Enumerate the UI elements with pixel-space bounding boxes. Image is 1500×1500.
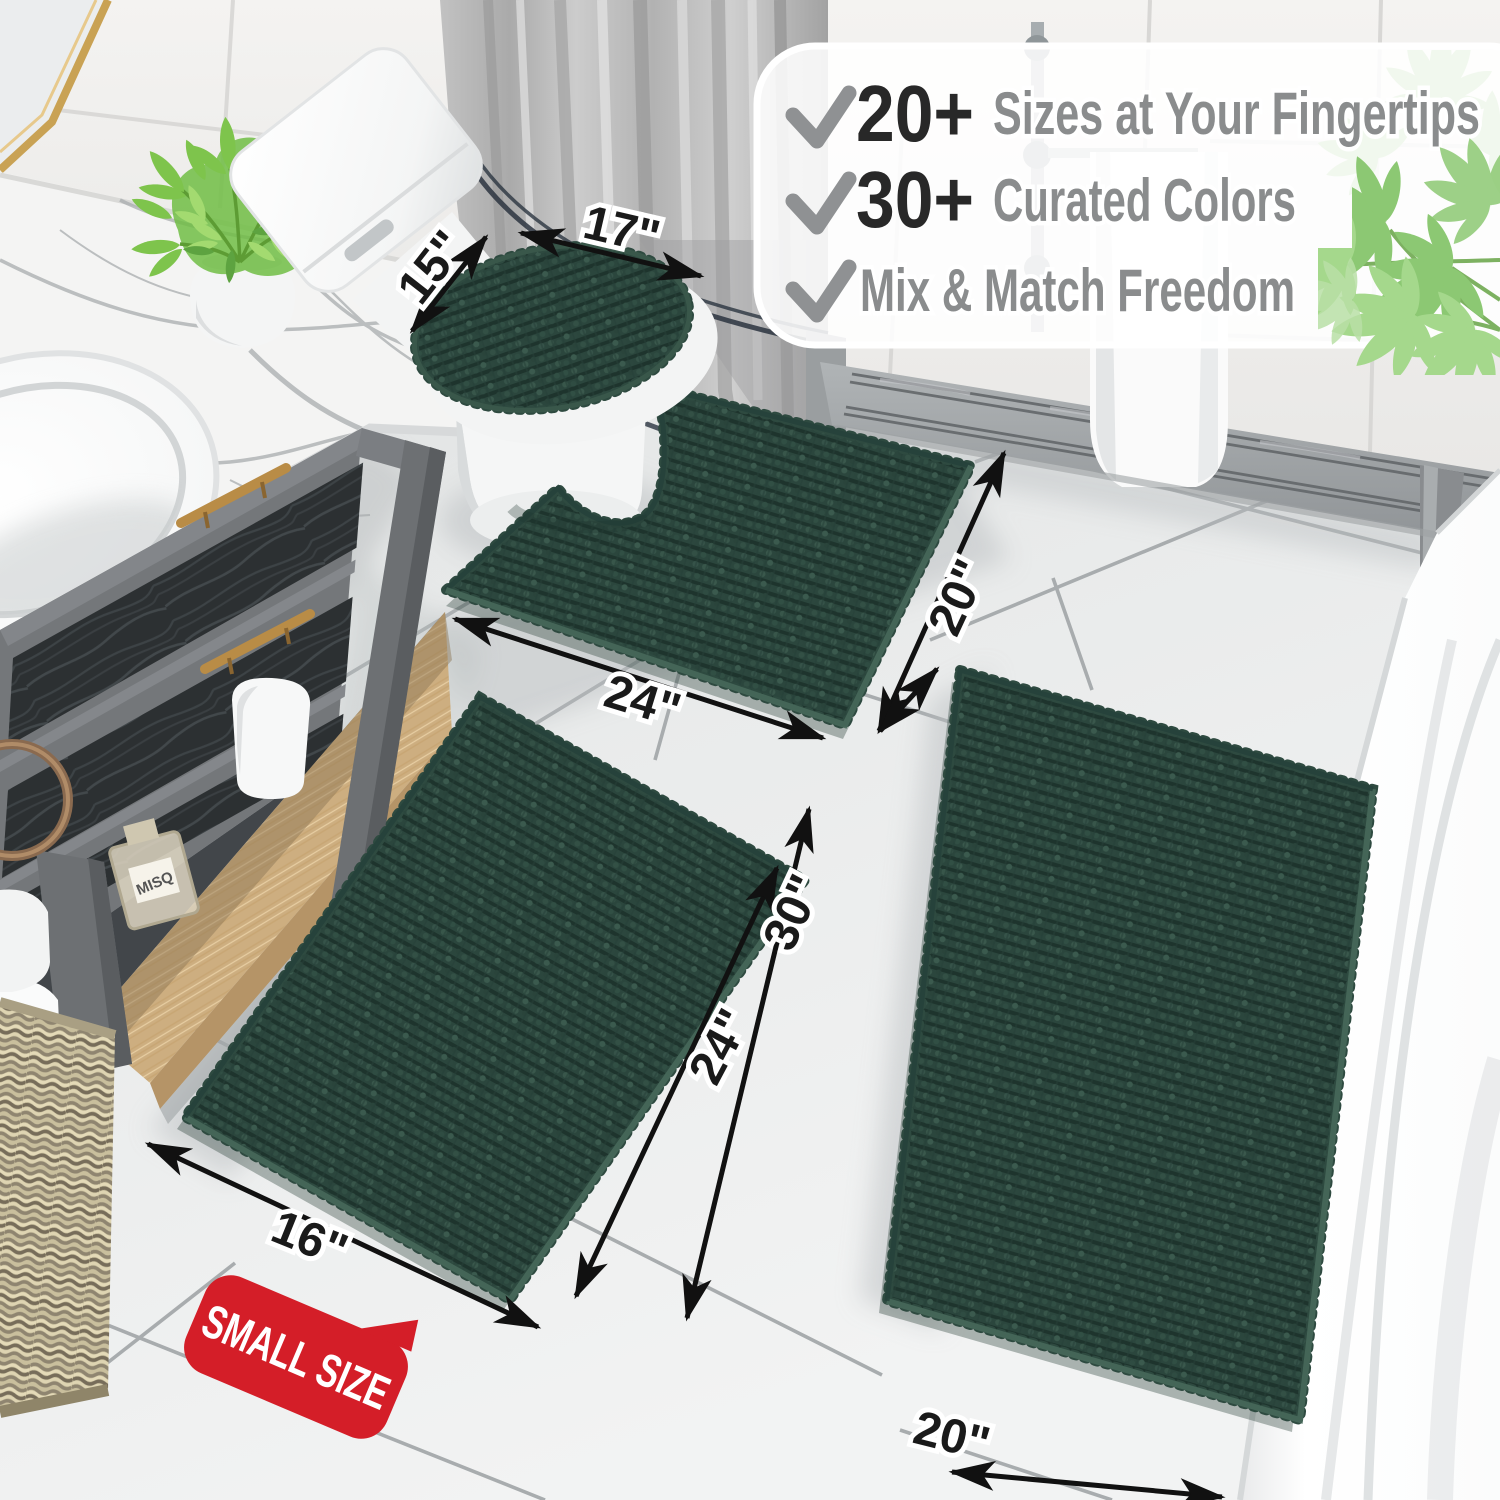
svg-text:Sizes at Your Fingertips: Sizes at Your Fingertips <box>993 80 1480 147</box>
svg-text:Curated Colors: Curated Colors <box>993 167 1296 234</box>
svg-text:30+: 30+ <box>856 155 974 244</box>
svg-text:20+: 20+ <box>856 69 974 158</box>
svg-text:Mix & Match Freedom: Mix & Match Freedom <box>860 257 1295 324</box>
